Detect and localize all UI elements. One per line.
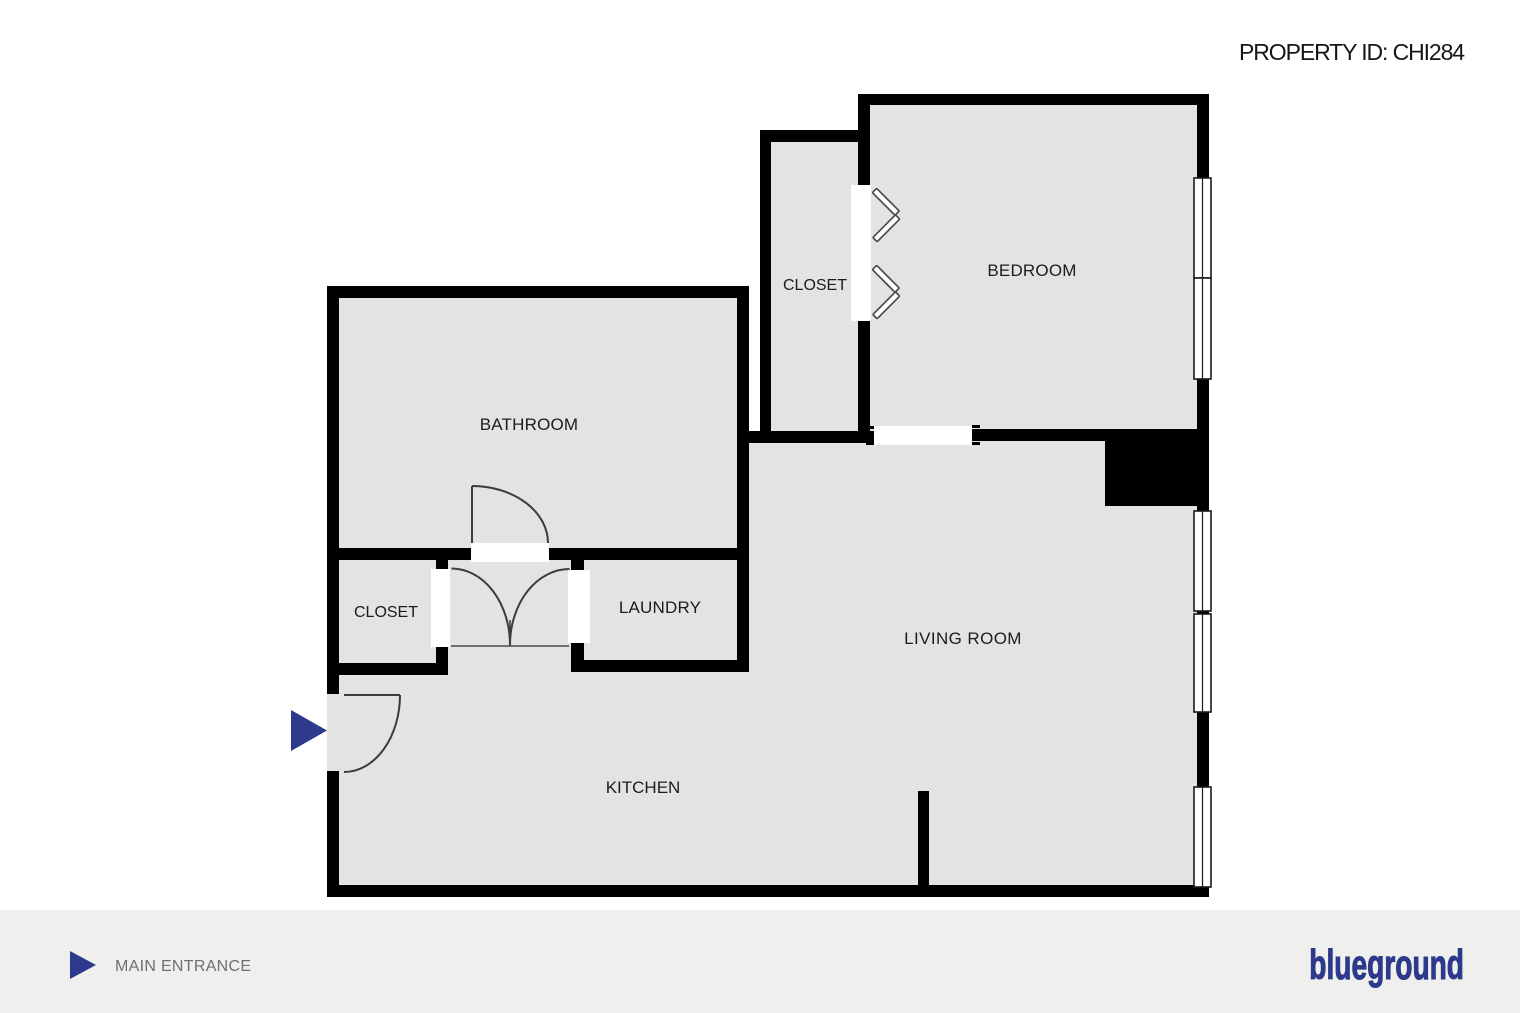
svg-text:blueground: blueground	[1309, 941, 1464, 988]
svg-text:LIVING ROOM: LIVING ROOM	[904, 629, 1022, 648]
svg-text:BATHROOM: BATHROOM	[480, 415, 579, 434]
svg-text:MAIN ENTRANCE: MAIN ENTRANCE	[115, 958, 251, 975]
svg-text:KITCHEN: KITCHEN	[606, 778, 681, 797]
svg-text:PROPERTY ID: CHI284: PROPERTY ID: CHI284	[1239, 39, 1465, 65]
svg-text:BEDROOM: BEDROOM	[987, 261, 1076, 280]
svg-text:LAUNDRY: LAUNDRY	[619, 598, 701, 617]
svg-text:CLOSET: CLOSET	[783, 277, 847, 294]
svg-text:CLOSET: CLOSET	[354, 604, 418, 621]
